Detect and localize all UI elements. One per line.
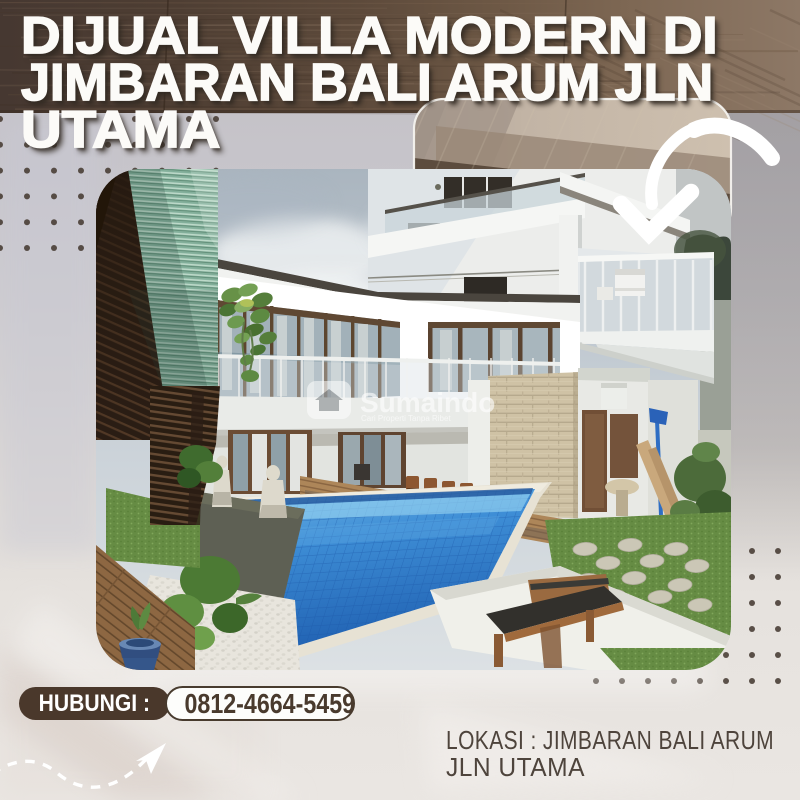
svg-text:Cari Properti Tanpa Ribet: Cari Properti Tanpa Ribet — [361, 414, 451, 423]
